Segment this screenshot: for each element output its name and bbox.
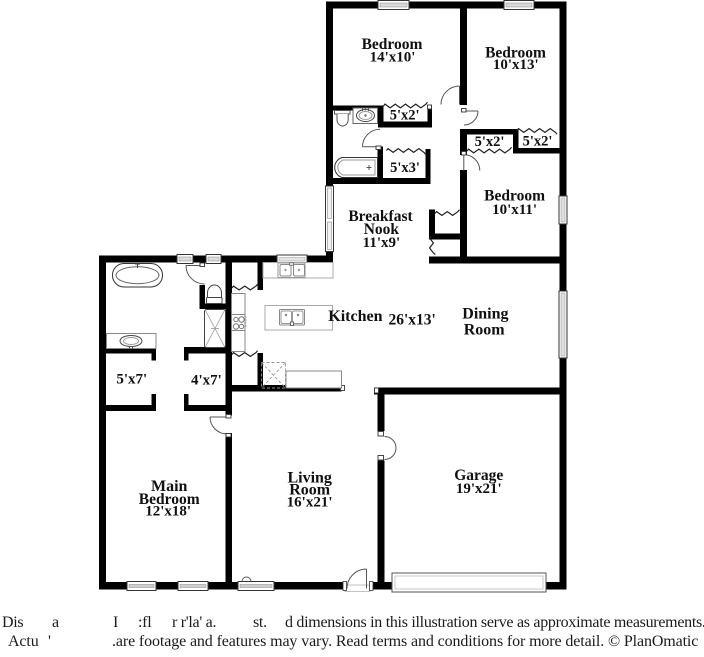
svg-text:5'x2': 5'x2' [475, 134, 505, 150]
svg-text:10'x13': 10'x13' [493, 57, 539, 73]
svg-text:5'x3': 5'x3' [390, 160, 420, 176]
svg-text:5'x2': 5'x2' [523, 134, 553, 150]
svg-text:Room: Room [464, 322, 506, 339]
svg-text:19'x21': 19'x21' [456, 481, 502, 497]
svg-text:4'x7': 4'x7' [191, 373, 222, 389]
svg-text:5'x7': 5'x7' [116, 372, 147, 388]
svg-text:14'x10': 14'x10' [370, 50, 416, 66]
svg-text:5'x2': 5'x2' [390, 108, 420, 124]
svg-text:11'x9': 11'x9' [363, 235, 401, 251]
svg-text:Dining: Dining [462, 305, 508, 322]
svg-text:12'x18': 12'x18' [145, 504, 191, 520]
svg-text:Kitchen: Kitchen [328, 308, 382, 325]
svg-text:16'x21': 16'x21' [287, 495, 333, 511]
svg-text:26'x13': 26'x13' [389, 311, 436, 328]
svg-text:10'x11': 10'x11' [492, 202, 537, 218]
